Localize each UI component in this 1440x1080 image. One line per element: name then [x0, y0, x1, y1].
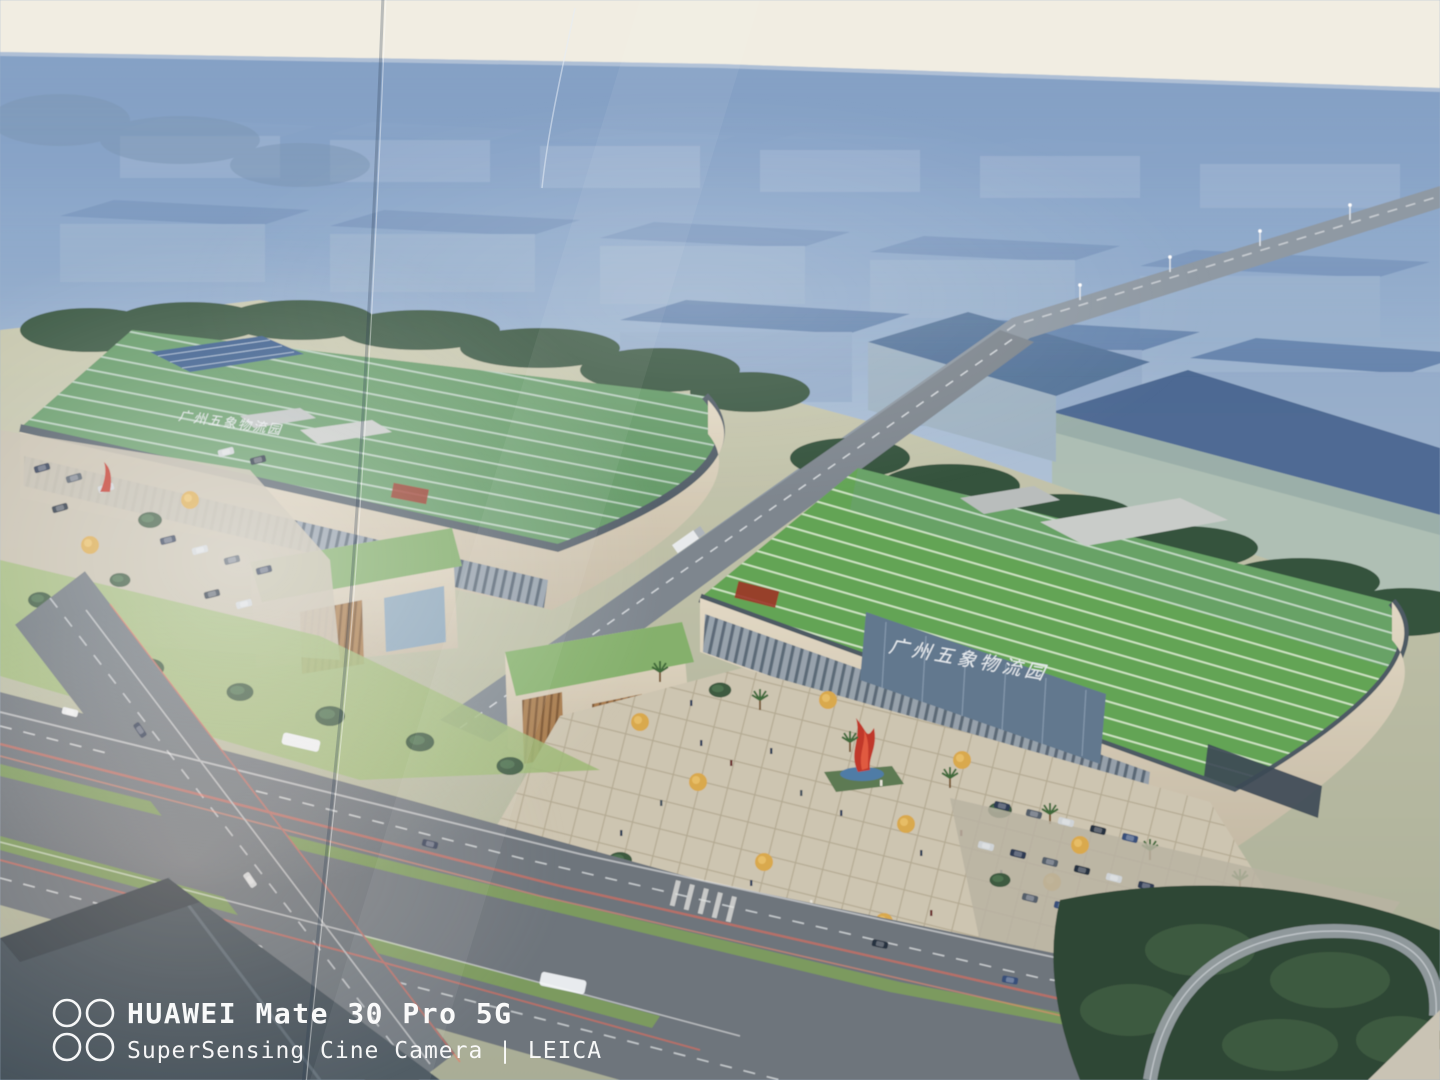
- watermark-camera-text: SuperSensing Cine Camera | LEICA: [127, 1038, 602, 1064]
- highway-interchange: [1053, 885, 1440, 1080]
- poster-photo: 广州五象物流园: [0, 0, 1440, 1080]
- rendering-scene: 广州五象物流园: [0, 0, 1440, 1080]
- watermark-device-text: HUAWEI Mate 30 Pro 5G: [127, 997, 513, 1030]
